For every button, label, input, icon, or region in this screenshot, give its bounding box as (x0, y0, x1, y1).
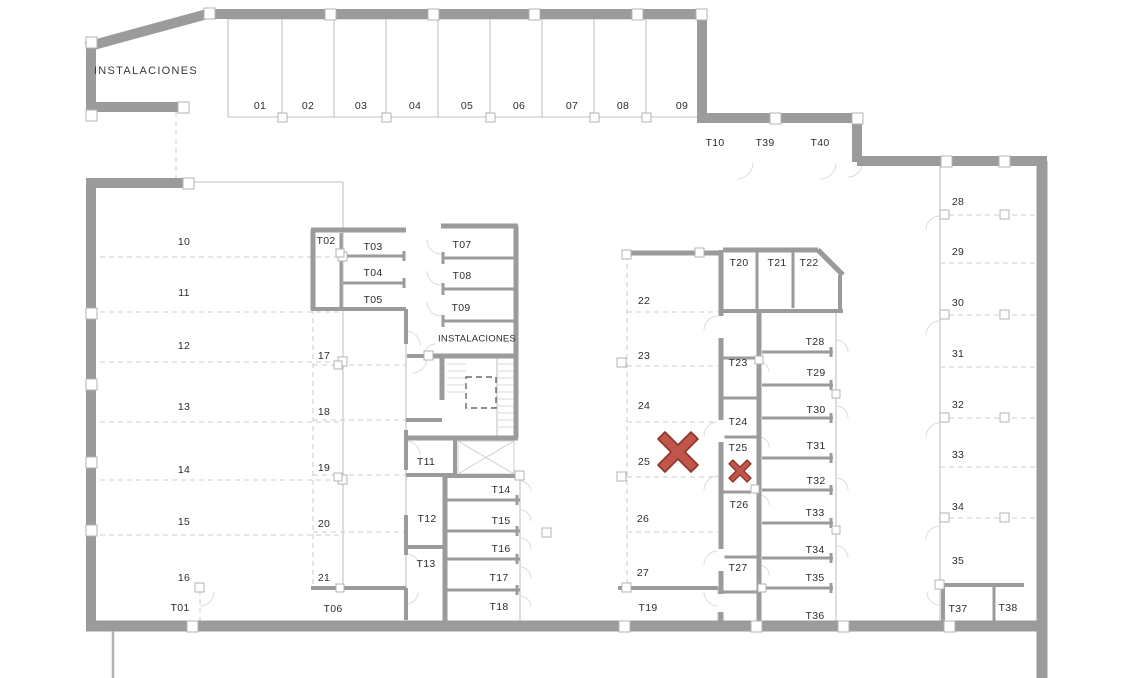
space-label-09: 09 (676, 100, 688, 112)
space-label-29: 29 (952, 246, 964, 258)
pillars (86, 8, 1010, 632)
space-label-02: 02 (302, 100, 314, 112)
unit-label-t39: T39 (756, 137, 775, 149)
unit-label-t26: T26 (730, 499, 749, 511)
outer-walls (86, 13, 1047, 678)
unit-label-t05: T05 (364, 294, 383, 306)
space-label-30: 30 (952, 297, 964, 309)
space-label-03: 03 (355, 100, 367, 112)
unit-label-t12: T12 (418, 513, 437, 525)
space-label-11: 11 (178, 287, 190, 299)
space-label-31: 31 (952, 348, 964, 360)
unit-label-t14: T14 (492, 484, 511, 496)
space-label-28: 28 (952, 196, 964, 208)
dashed-dividers (91, 112, 1036, 623)
space-label-32: 32 (952, 399, 964, 411)
room-label-instalaciones-top: INSTALACIONES (94, 65, 198, 77)
unit-label-t01: T01 (171, 602, 190, 614)
unit-label-t36: T36 (806, 610, 825, 622)
x-marker-large (658, 432, 698, 472)
unit-label-t13: T13 (417, 558, 436, 570)
unit-label-t10: T10 (706, 137, 725, 149)
unit-label-t40: T40 (811, 137, 830, 149)
space-label-20: 20 (318, 518, 330, 530)
unit-label-t30: T30 (807, 404, 826, 416)
stair-treads (447, 364, 516, 427)
unit-label-t20: T20 (730, 257, 749, 269)
unit-label-t37: T37 (949, 603, 968, 615)
floorplan-canvas: INSTALACIONES 01 02 03 04 05 06 07 08 09… (0, 0, 1130, 678)
unit-label-t18: T18 (490, 601, 509, 613)
space-label-23: 23 (638, 350, 650, 362)
elevator-shaft-outline (466, 377, 496, 408)
unit-label-t07: T07 (453, 239, 472, 251)
unit-label-t32: T32 (807, 475, 826, 487)
space-label-14: 14 (178, 464, 190, 476)
space-label-15: 15 (178, 516, 190, 528)
room-label-instalaciones-mid: INSTALACIONES (438, 334, 516, 345)
space-label-24: 24 (638, 400, 650, 412)
unit-label-t03: T03 (364, 241, 383, 253)
unit-label-t04: T04 (364, 267, 383, 279)
unit-label-t23: T23 (729, 357, 748, 369)
unit-label-t27: T27 (729, 562, 748, 574)
space-label-13: 13 (178, 401, 190, 413)
space-label-21: 21 (318, 572, 330, 584)
unit-label-t28: T28 (806, 336, 825, 348)
unit-label-t06: T06 (324, 603, 343, 615)
space-label-19: 19 (318, 462, 330, 474)
unit-label-t29: T29 (807, 367, 826, 379)
unit-label-t24: T24 (729, 416, 748, 428)
unit-label-t22: T22 (800, 257, 819, 269)
space-label-17: 17 (318, 350, 330, 362)
space-label-07: 07 (566, 100, 578, 112)
unit-label-t34: T34 (806, 544, 825, 556)
unit-label-t21: T21 (768, 257, 787, 269)
unit-label-t15: T15 (492, 515, 511, 527)
space-label-10: 10 (178, 236, 190, 248)
space-label-12: 12 (178, 340, 190, 352)
space-label-25: 25 (638, 456, 650, 468)
space-label-08: 08 (617, 100, 629, 112)
unit-label-t08: T08 (453, 270, 472, 282)
space-label-35: 35 (952, 555, 964, 567)
unit-label-t33: T33 (806, 507, 825, 519)
unit-label-t16: T16 (492, 543, 511, 555)
unit-label-t38: T38 (999, 602, 1018, 614)
unit-label-t11: T11 (417, 456, 435, 468)
unit-label-t09: T09 (452, 302, 471, 314)
space-label-06: 06 (513, 100, 525, 112)
unit-label-t19: T19 (639, 602, 658, 614)
space-label-33: 33 (952, 449, 964, 461)
unit-label-t31: T31 (807, 440, 826, 452)
unit-label-t17: T17 (490, 572, 509, 584)
vent-shaft-crossed-box (458, 441, 514, 474)
unit-label-t25: T25 (729, 442, 748, 454)
unit-label-t35: T35 (806, 572, 825, 584)
space-label-05: 05 (461, 100, 473, 112)
space-label-01: 01 (254, 100, 266, 112)
unit-label-t02: T02 (317, 235, 336, 247)
space-label-04: 04 (409, 100, 421, 112)
space-label-22: 22 (638, 295, 650, 307)
x-marker-small (729, 460, 751, 482)
space-label-16: 16 (178, 572, 190, 584)
space-label-18: 18 (318, 406, 330, 418)
space-label-26: 26 (637, 513, 649, 525)
space-label-34: 34 (952, 501, 964, 513)
space-label-27: 27 (637, 567, 649, 579)
